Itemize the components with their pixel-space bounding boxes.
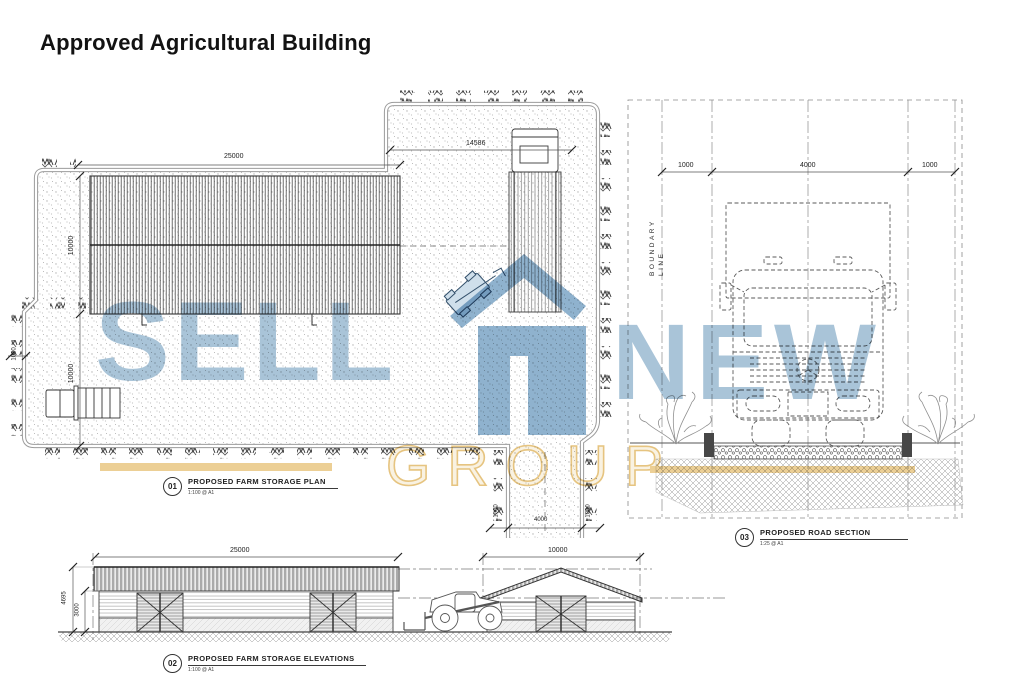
elevations [58, 553, 726, 642]
door-right [310, 593, 356, 632]
site-plan [6, 96, 606, 538]
road-drawing-label: 03 PROPOSED ROAD SECTION 1:25 @ A1 [735, 528, 908, 547]
gable-elevation [480, 568, 642, 632]
road-title: PROPOSED ROAD SECTION [760, 528, 908, 540]
plan-drawing-label: 01 PROPOSED FARM STORAGE PLAN 1:100 @ A1 [163, 477, 338, 496]
dim-drive-verge-right: 1000 [586, 504, 592, 517]
dim-plan-building-depth: 10000 [68, 236, 75, 255]
dim-drive-width: 4000 [534, 517, 547, 523]
dim-elev-eaves-height: 3000 [75, 603, 81, 616]
planting-right [903, 392, 975, 444]
drawing-sheet: Approved Agricultural Building [0, 0, 1024, 698]
plan-title: PROPOSED FARM STORAGE PLAN [188, 477, 338, 489]
elevations-title: PROPOSED FARM STORAGE ELEVATIONS [188, 654, 366, 666]
road-aggregate-layer [714, 446, 902, 459]
dim-road-carriageway: 4000 [800, 162, 816, 169]
road-dimension-lines [658, 168, 959, 176]
dim-plan-yard-depth: 10000 [68, 364, 75, 383]
plan-ref-number: 01 [163, 477, 182, 496]
road-scale: 1:25 @ A1 [760, 541, 908, 547]
dim-elev-length: 25000 [230, 547, 249, 554]
road-ref-number: 03 [735, 528, 754, 547]
boundary-line-label: BOUNDARY LINE [648, 186, 666, 276]
gable-door [536, 596, 586, 632]
dim-plan-yard-width: 14586 [466, 140, 485, 147]
side-elevation [94, 567, 399, 632]
plan-scale: 1:100 @ A1 [188, 490, 338, 496]
dim-plan-building-length: 25000 [224, 153, 243, 160]
dim-elev-gable-width: 10000 [548, 547, 567, 554]
door-left [137, 593, 183, 632]
road-subbase [656, 459, 963, 513]
flatbed-truck-plan [46, 386, 120, 420]
dim-road-left-verge: 1000 [678, 162, 694, 169]
dim-plan-hedge-width: 1000 [12, 347, 18, 360]
kerb-left [704, 433, 714, 457]
elevations-ref-number: 02 [163, 654, 182, 673]
box-lorry-plan [509, 129, 561, 312]
dim-elev-ridge-height: 4695 [62, 591, 68, 604]
planting-left [640, 392, 712, 444]
kerb-right [902, 433, 912, 457]
architectural-drawing-linework [0, 0, 1024, 698]
dim-road-right-verge: 1000 [922, 162, 938, 169]
elevations-drawing-label: 02 PROPOSED FARM STORAGE ELEVATIONS 1:10… [163, 654, 366, 673]
dim-drive-verge-left: 1000 [494, 504, 500, 517]
ground-hatch [58, 632, 672, 642]
building-roof-plan [90, 176, 400, 325]
elevations-scale: 1:100 @ A1 [188, 667, 366, 673]
